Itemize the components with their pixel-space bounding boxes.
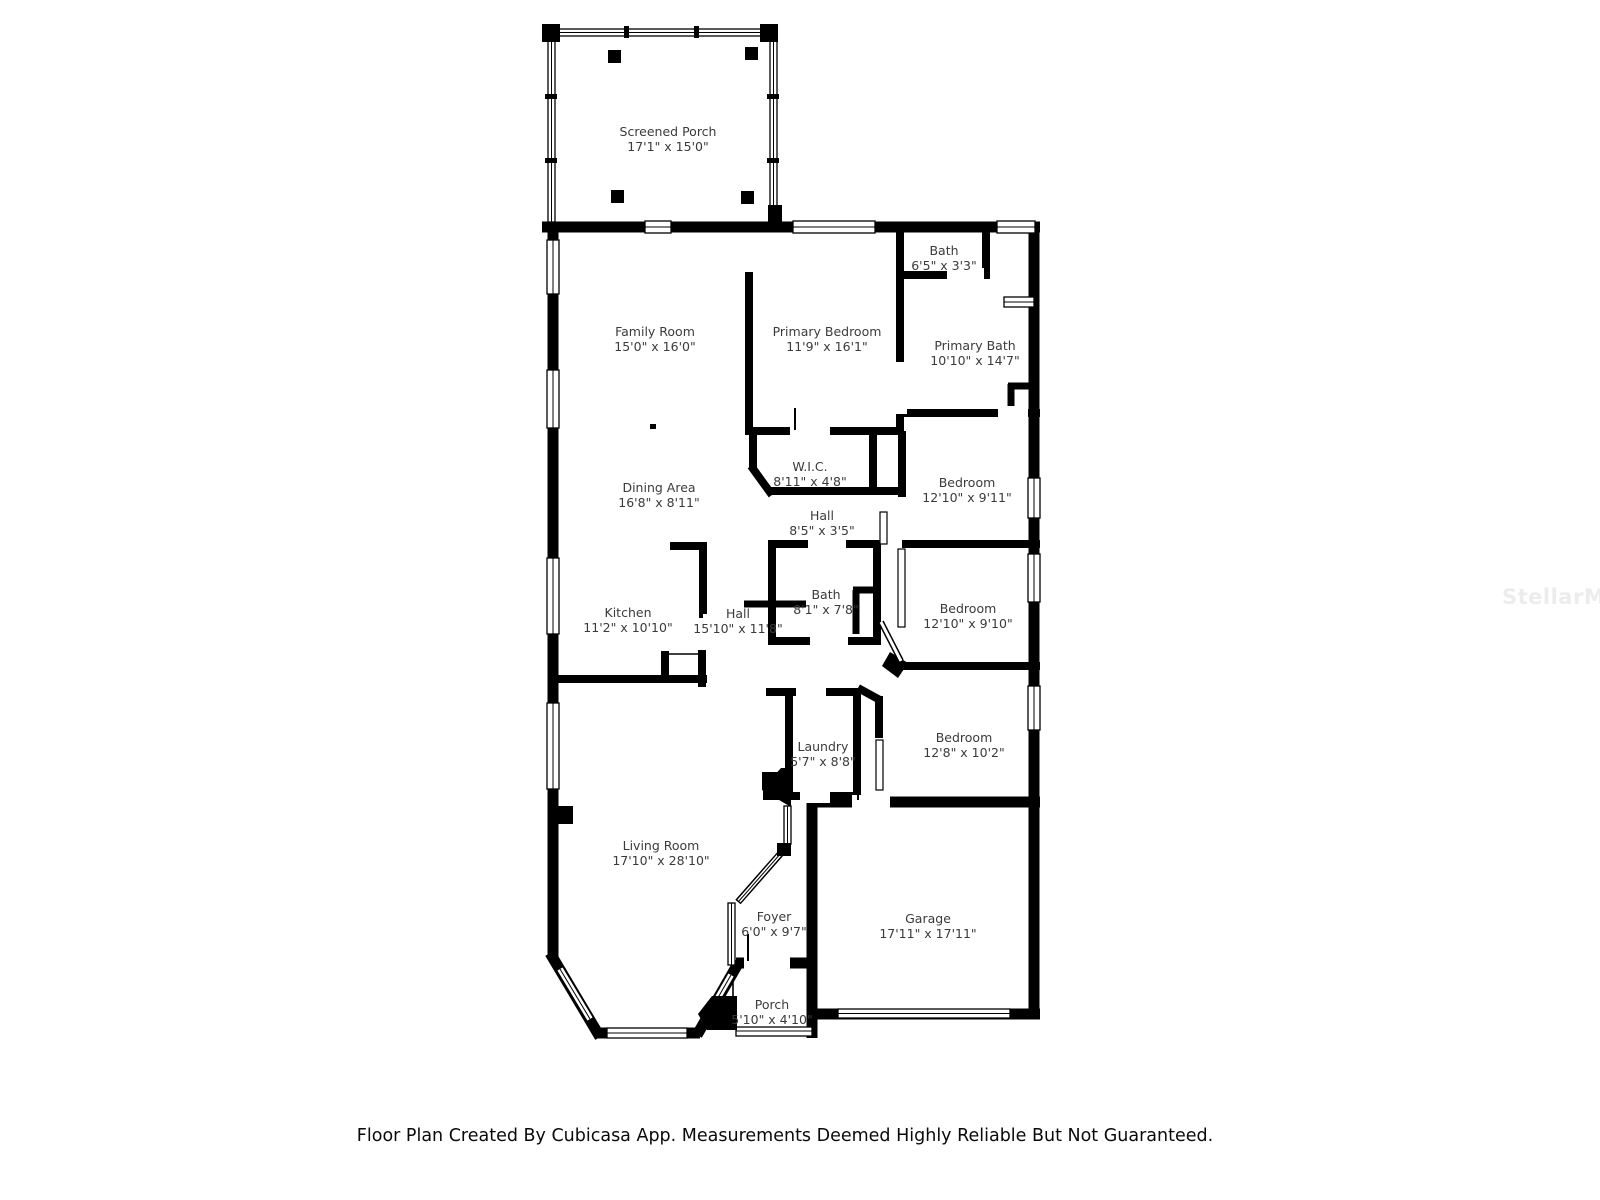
porch-post [611,190,624,203]
room-dims: 12'8" x 10'2" [923,745,1004,760]
room-label-porch: Porch 5'10" x 4'10" [731,997,812,1027]
room-name: Bedroom [922,475,1011,490]
room-name: Hall [789,508,855,523]
room-label-family-room: Family Room 15'0" x 16'0" [614,324,695,354]
floor-plan-page: Screened Porch 17'1" x 15'0" Family Room… [0,0,1600,1200]
room-label-laundry: Laundry 5'7" x 8'8" [790,739,856,769]
room-name: Screened Porch [620,124,717,139]
room-dims: 12'10" x 9'11" [922,490,1011,505]
room-label-hall-small: Hall 8'5" x 3'5" [789,508,855,538]
room-name: W.I.C. [773,459,846,474]
room-dims: 10'10" x 14'7" [930,353,1019,368]
room-name: Porch [731,997,812,1012]
room-dims: 15'0" x 16'0" [614,339,695,354]
room-name: Living Room [612,838,709,853]
room-label-hall-large: Hall 15'10" x 11'8" [693,606,782,636]
room-name: Bedroom [923,730,1004,745]
porch-post [745,47,758,60]
room-dims: 11'2" x 10'10" [583,620,672,635]
room-name: Bath [793,587,859,602]
stellar-mls-watermark: StellarMLS [1502,585,1600,609]
room-label-dining-area: Dining Area 16'8" x 8'11" [618,480,699,510]
room-label-living-room: Living Room 17'10" x 28'10" [612,838,709,868]
room-dims: 5'10" x 4'10" [731,1012,812,1027]
room-dims: 12'10" x 9'10" [923,616,1012,631]
room-label-bath-2: Bath 8'1" x 7'8" [793,587,859,617]
room-label-kitchen: Kitchen 11'2" x 10'10" [583,605,672,635]
room-label-garage: Garage 17'11" x 17'11" [879,911,976,941]
room-label-primary-bath: Primary Bath 10'10" x 14'7" [930,338,1019,368]
room-label-wic: W.I.C. 8'11" x 4'8" [773,459,846,489]
room-name: Bedroom [923,601,1012,616]
room-name: Laundry [790,739,856,754]
porch-post [542,24,560,42]
room-dims: 8'1" x 7'8" [793,602,859,617]
porch-post [741,191,754,204]
room-dims: 16'8" x 8'11" [618,495,699,510]
room-label-bedroom-2: Bedroom 12'10" x 9'10" [923,601,1012,631]
room-name: Garage [879,911,976,926]
room-label-primary-bedroom: Primary Bedroom 11'9" x 16'1" [773,324,882,354]
room-dims: 17'10" x 28'10" [612,853,709,868]
room-dims: 8'5" x 3'5" [789,523,855,538]
room-name: Kitchen [583,605,672,620]
room-name: Dining Area [618,480,699,495]
room-name: Primary Bedroom [773,324,882,339]
room-name: Foyer [741,909,807,924]
room-name: Primary Bath [930,338,1019,353]
room-label-screened-porch: Screened Porch 17'1" x 15'0" [620,124,717,154]
room-name: Family Room [614,324,695,339]
room-dims: 17'1" x 15'0" [620,139,717,154]
room-dims: 6'0" x 9'7" [741,924,807,939]
room-label-bedroom-1: Bedroom 12'10" x 9'11" [922,475,1011,505]
room-name: Bath [911,243,977,258]
room-dims: 11'9" x 16'1" [773,339,882,354]
disclaimer-text: Floor Plan Created By Cubicasa App. Meas… [357,1126,1213,1146]
room-dims: 6'5" x 3'3" [911,258,977,273]
room-label-bedroom-3: Bedroom 12'8" x 10'2" [923,730,1004,760]
room-dims: 5'7" x 8'8" [790,754,856,769]
room-dims: 15'10" x 11'8" [693,621,782,636]
room-label-foyer: Foyer 6'0" x 9'7" [741,909,807,939]
room-label-bath-1: Bath 6'5" x 3'3" [911,243,977,273]
porch-post [608,50,621,63]
room-name: Hall [693,606,782,621]
porch-post [760,24,778,42]
room-dims: 8'11" x 4'8" [773,474,846,489]
room-dims: 17'11" x 17'11" [879,926,976,941]
